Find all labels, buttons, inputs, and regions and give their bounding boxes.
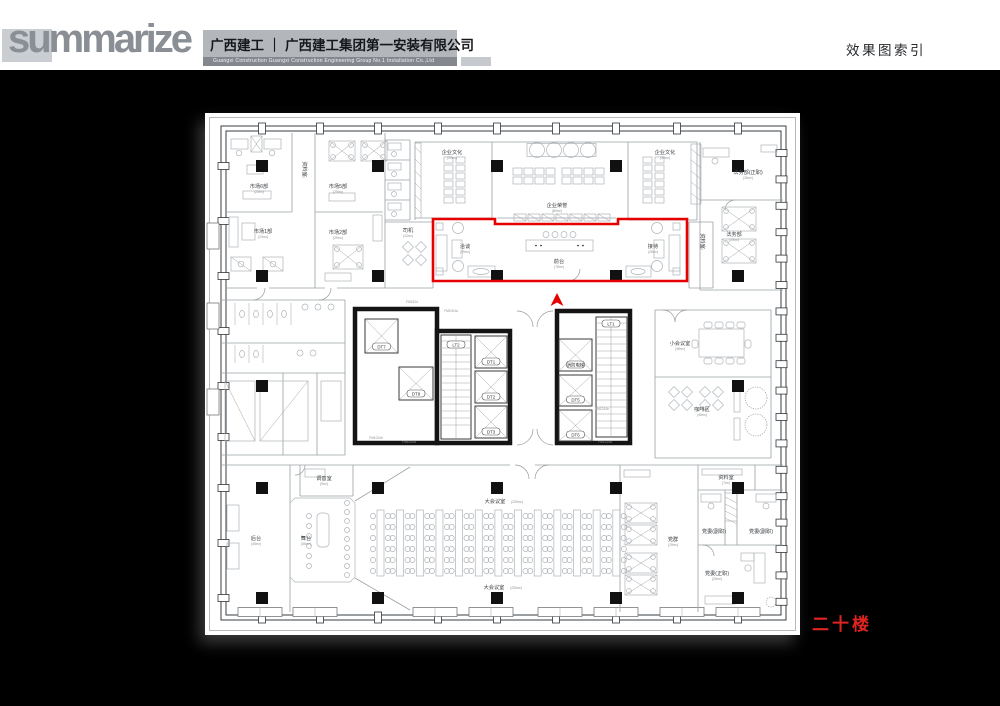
plan-label: (25m²)	[729, 238, 739, 242]
plan-label: (26m²)	[743, 176, 753, 180]
plan-label: FM1024b	[369, 436, 383, 440]
plan-label: 党委(正职)	[705, 569, 729, 577]
plan-label: (78m²)	[554, 265, 564, 269]
plan-label: DT7	[377, 345, 386, 350]
plan-label: 洽谈	[460, 242, 471, 250]
plan-label: 市场2部	[329, 228, 347, 236]
plan-label: (29m²)	[333, 190, 343, 194]
plan-label: (23m²)	[254, 190, 264, 194]
plan-label: 企业文化	[442, 148, 463, 156]
plan-label: 党群	[668, 535, 678, 543]
plan-label: 法务部(正职)	[733, 168, 763, 176]
page-title: 效果图索引	[846, 39, 926, 59]
plan-label: (7m²)	[722, 481, 730, 485]
header-bar: summarize 广西建工 ｜ 广西建工集团第一安装有限公司 Guangxi …	[0, 0, 1000, 70]
plan-label: FM1224a	[598, 440, 612, 444]
plan-label: LT2	[452, 343, 460, 348]
plan-label: 消防电梯	[567, 362, 585, 369]
plan-label: 舞台	[301, 534, 311, 542]
company-name-en: Guangxi Construction Guangxi Constructio…	[203, 57, 457, 66]
plan-label: 企业荣誉	[547, 201, 569, 209]
plan-label: DT6	[571, 433, 580, 438]
slide-canvas: DT7DT8DT1DT2DT3消防电梯DT5DT6LT2LT1FM1524FM1…	[0, 70, 1000, 706]
plan-label: (23m²)	[258, 235, 268, 239]
plan-label: 前台	[554, 257, 564, 265]
plan-label: DT3	[487, 430, 496, 435]
plan-label: 法务部	[726, 230, 742, 238]
plan-label: 小会议室	[670, 339, 691, 347]
plan-label: (25m²)	[648, 250, 658, 254]
plan-label: FM1524	[406, 300, 418, 304]
plan-label: 企业文化	[655, 148, 676, 156]
plan-label: (80m²)	[552, 209, 562, 213]
plan-label: (230m²)	[510, 586, 522, 590]
plan-label: DT5	[571, 398, 580, 403]
plan-label: (25m²)	[460, 250, 470, 254]
company-name-cn: 广西建工 ｜ 广西建工集团第一安装有限公司	[210, 34, 474, 54]
plan-label: (56m²)	[301, 542, 311, 546]
plan-label: 咖啡区	[694, 405, 710, 413]
plan-label: 司机	[403, 226, 414, 234]
plan-label: (30m²)	[660, 156, 670, 160]
plan-label: 后台	[251, 534, 261, 542]
plan-label: 党委(副职)	[702, 527, 726, 535]
plan-label: (230m²)	[511, 500, 523, 504]
plan-label: 党委(副职)	[749, 527, 773, 535]
plan-label: (48m²)	[675, 347, 685, 351]
plan-label: 大会议室	[484, 583, 505, 591]
plan-label: 大会议室	[485, 497, 506, 505]
plan-label: (45m²)	[251, 542, 261, 546]
plan-label: (25m²)	[668, 543, 678, 547]
company-name-band: 广西建工 ｜ 广西建工集团第一安装有限公司	[203, 30, 457, 57]
plan-label: DT1	[487, 360, 496, 365]
plan-label: FM1224b	[595, 407, 609, 411]
plan-label: 市场5部	[329, 182, 347, 190]
plan-label: FM1024a	[402, 440, 416, 444]
core: DT7DT8DT1DT2DT3消防电梯DT5DT6LT2LT1FM1524FM1…	[355, 300, 630, 444]
plan-label: FM1024a	[444, 309, 458, 313]
floor-plan-sheet: DT7DT8DT1DT2DT3消防电梯DT5DT6LT2LT1FM1524FM1…	[205, 113, 800, 635]
plan-label: (12m²)	[403, 234, 413, 238]
north-arrow-icon	[551, 293, 564, 306]
strip-tab	[461, 57, 491, 66]
plan-label: (9m²)	[320, 482, 328, 486]
plan-label: (26m²)	[712, 577, 722, 581]
floor-number-label: 二十楼	[812, 610, 872, 635]
plan-label: (23m²)	[447, 156, 457, 160]
plan-label: 资料室	[718, 473, 734, 481]
plan-label: (7m²)	[302, 170, 306, 178]
plan-label: 接待	[648, 242, 658, 250]
plan-label: DT8	[412, 392, 421, 397]
plan-label: 市场1部	[254, 227, 272, 235]
floor-plan: DT7DT8DT1DT2DT3消防电梯DT5DT6LT2LT1FM1524FM1…	[205, 113, 800, 635]
plan-label: (7m²)	[700, 242, 704, 250]
plan-label: (45m²)	[697, 413, 707, 417]
plan-label: 调音室	[316, 474, 332, 482]
plan-label: (29m²)	[333, 236, 343, 240]
plan-label: DT2	[487, 395, 496, 400]
logo-text: summarize	[8, 20, 190, 58]
plan-label: 市场6部	[250, 182, 268, 190]
plan-label: LT1	[607, 322, 615, 327]
